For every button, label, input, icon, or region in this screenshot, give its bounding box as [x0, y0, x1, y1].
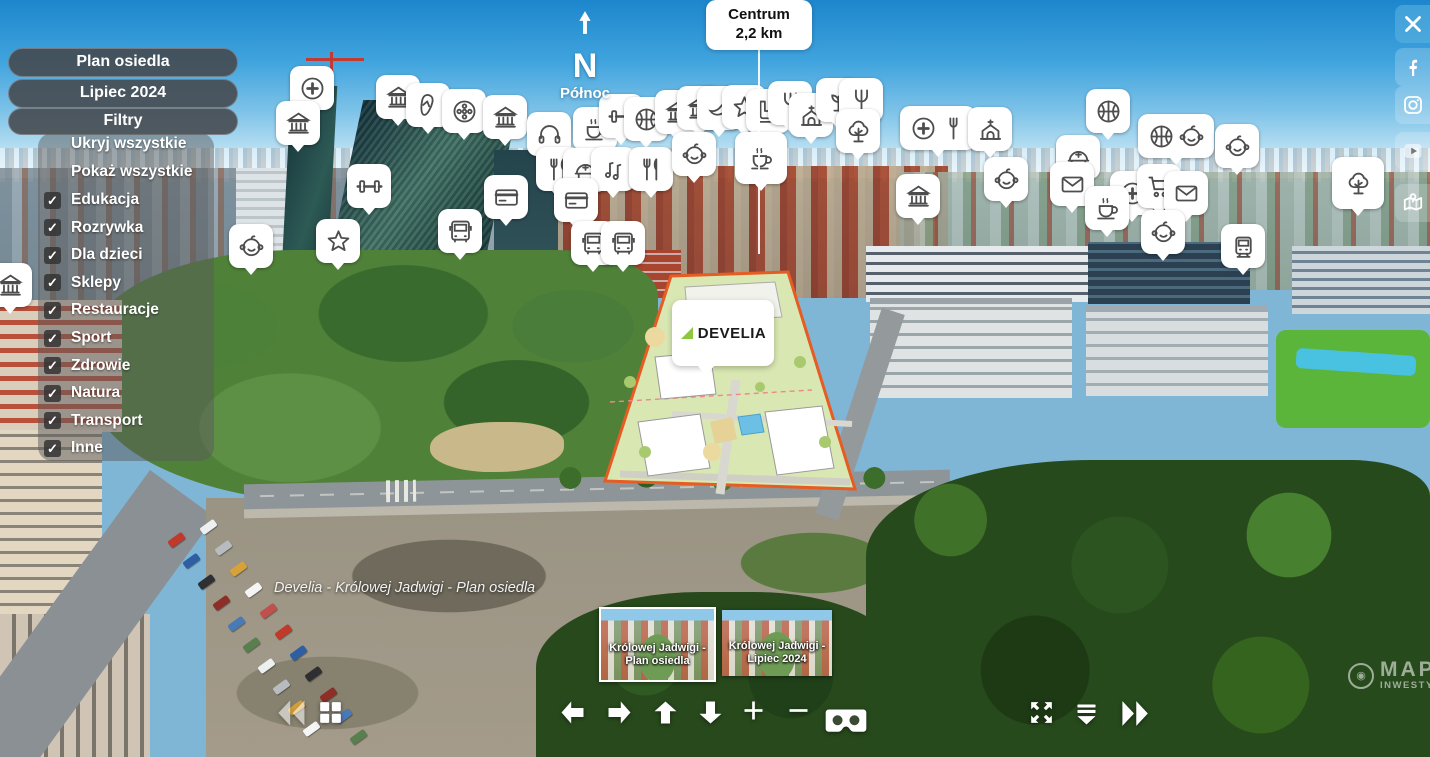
- filter-category-label: Restauracje: [71, 301, 159, 319]
- poi-marker-basketball-baby[interactable]: [1138, 114, 1214, 158]
- filter-category-zdrowie[interactable]: ✓ Zdrowie: [44, 354, 130, 378]
- checkbox-icon[interactable]: ✓: [44, 440, 61, 457]
- fullscreen-icon: [1026, 697, 1057, 728]
- show-all-button[interactable]: Pokaż wszystkie: [44, 160, 192, 184]
- baby-icon: [1149, 218, 1178, 247]
- checkbox-icon[interactable]: ✓: [44, 192, 61, 209]
- hide-all-button[interactable]: Ukryj wszystkie: [44, 132, 186, 156]
- fast-forward-button[interactable]: [1117, 695, 1154, 737]
- arrow-up-icon: [650, 697, 681, 728]
- instagram-icon: [1401, 93, 1425, 117]
- vr-button[interactable]: [823, 698, 869, 749]
- poi-marker-dumbbell[interactable]: [347, 164, 391, 208]
- tree-icon: [1344, 169, 1373, 198]
- filter-category-sport[interactable]: ✓ Sport: [44, 326, 111, 350]
- basketball-icon: [1147, 122, 1176, 151]
- poi-marker-coffee[interactable]: [735, 132, 787, 184]
- filter-category-dla-dzieci[interactable]: ✓ Dla dzieci: [44, 243, 143, 267]
- apartment-block-2: [1086, 306, 1268, 396]
- basketball-icon: [1094, 97, 1123, 126]
- filter-category-label: Zdrowie: [71, 357, 130, 375]
- checkbox-icon[interactable]: ✓: [44, 385, 61, 402]
- checkbox-icon[interactable]: ✓: [44, 412, 61, 429]
- poi-marker-coffee[interactable]: [1085, 186, 1129, 230]
- developer-logo-card[interactable]: DEVELIA: [672, 300, 774, 366]
- coffee-icon: [1093, 194, 1122, 223]
- close-icon: [1401, 12, 1425, 36]
- sports-field: [1276, 330, 1430, 428]
- vr-icon: [823, 698, 869, 744]
- coffee-icon: [747, 144, 776, 173]
- office-building: [866, 246, 1098, 302]
- filter-category-inne[interactable]: ✓ Inne: [44, 436, 103, 460]
- compass-label: Północ: [545, 85, 625, 102]
- watermark: ◉ MAPY INWESTYCJI: [1348, 660, 1430, 691]
- filter-category-label: Rozrywka: [71, 219, 143, 237]
- poi-marker-basketball[interactable]: [1086, 89, 1130, 133]
- distance-callout: Centrum 2,2 km: [706, 0, 812, 50]
- callout-distance: 2,2 km: [706, 24, 812, 43]
- map-button[interactable]: [1395, 184, 1430, 222]
- filter-category-label: Transport: [71, 412, 142, 430]
- filter-category-label: Dla dzieci: [71, 246, 143, 264]
- checkbox-icon[interactable]: ✓: [44, 274, 61, 291]
- checkbox-icon[interactable]: ✓: [44, 247, 61, 264]
- poi-marker-baby[interactable]: [1215, 124, 1259, 168]
- arrow-up-button[interactable]: [650, 697, 681, 733]
- play-icon: [1401, 139, 1425, 163]
- cutlery-icon: [637, 155, 666, 184]
- scene-caption: Develia - Królowej Jadwigi - Plan osiedl…: [274, 580, 535, 596]
- arrow-left-button[interactable]: [557, 697, 588, 733]
- notes-icon: [599, 155, 628, 184]
- filter-category-rozrywka[interactable]: ✓ Rozrywka: [44, 216, 143, 240]
- poi-marker-bank[interactable]: [0, 263, 32, 307]
- church-icon: [976, 115, 1005, 144]
- filters-title: Filtry: [8, 108, 238, 135]
- facebook-button[interactable]: [1395, 48, 1430, 86]
- far-right-building: [1292, 246, 1430, 314]
- medical-icon: [909, 114, 938, 143]
- star-icon: [324, 227, 353, 256]
- bank-icon: [0, 271, 25, 300]
- poi-marker-bus[interactable]: [438, 209, 482, 253]
- callout-stem: [758, 44, 760, 254]
- map-icon: [1401, 191, 1425, 215]
- plus-icon: [740, 697, 767, 724]
- filter-category-label: Sport: [71, 329, 111, 347]
- site-plan-overlay[interactable]: [560, 262, 880, 502]
- card-icon: [562, 186, 591, 215]
- bus-icon: [609, 229, 638, 258]
- filter-category-sklepy[interactable]: ✓ Sklepy: [44, 271, 121, 295]
- arrow-left-icon: [557, 697, 588, 728]
- bank-icon: [284, 109, 313, 138]
- poi-marker-baby[interactable]: [984, 157, 1028, 201]
- tram-icon: [1229, 232, 1258, 261]
- fast-forward-icon: [1117, 695, 1154, 732]
- medical-icon: [298, 74, 327, 103]
- instagram-button[interactable]: [1395, 86, 1430, 124]
- crosswalk: [386, 480, 416, 503]
- thumbnail-plan-osiedla[interactable]: Królowej Jadwigi -Plan osiedla: [599, 607, 716, 682]
- arrow-right-button[interactable]: [604, 697, 635, 733]
- baby-icon: [1177, 122, 1206, 151]
- filter-category-natura[interactable]: ✓ Natura: [44, 381, 120, 405]
- develia-logo-icon: [680, 326, 694, 340]
- compass-letter: N: [545, 49, 625, 83]
- poi-marker-card[interactable]: [554, 178, 598, 222]
- baby-icon: [680, 140, 709, 169]
- collapse-button[interactable]: [1071, 698, 1102, 734]
- minus-icon: [785, 697, 812, 724]
- rewind-icon: [272, 694, 310, 732]
- bank-icon: [491, 103, 520, 132]
- mail-icon: [1058, 170, 1087, 199]
- poi-marker-cutlery[interactable]: [629, 147, 673, 191]
- close-button[interactable]: [1395, 5, 1430, 43]
- arrow-down-button[interactable]: [695, 697, 726, 733]
- collapse-icon: [1071, 698, 1102, 729]
- baby-icon: [1223, 132, 1252, 161]
- north-arrow-icon: [572, 6, 598, 40]
- filter-category-restauracje[interactable]: ✓ Restauracje: [44, 298, 159, 322]
- poi-marker-tram[interactable]: [1221, 224, 1265, 268]
- poi-marker-film[interactable]: [442, 89, 486, 133]
- arrow-right-icon: [604, 697, 635, 728]
- play-button[interactable]: [1395, 132, 1430, 170]
- checkbox-icon[interactable]: ✓: [44, 302, 61, 319]
- dumbbell-icon: [355, 172, 384, 201]
- view-button-plan-osiedla[interactable]: Plan osiedla: [8, 48, 238, 77]
- crane-arm: [306, 58, 364, 61]
- filter-category-edukacja[interactable]: ✓ Edukacja: [44, 188, 139, 212]
- filter-category-transport[interactable]: ✓ Transport: [44, 409, 142, 433]
- slipper-icon: [414, 91, 443, 120]
- fork-icon: [939, 114, 968, 143]
- watermark-logo-icon: ◉: [1348, 663, 1374, 689]
- poi-marker-church[interactable]: [968, 107, 1012, 151]
- filter-category-label: Sklepy: [71, 274, 121, 292]
- poi-marker-star[interactable]: [316, 219, 360, 263]
- poi-marker-mail[interactable]: [1164, 171, 1208, 215]
- minus-button[interactable]: [785, 697, 812, 729]
- poi-marker-baby[interactable]: [229, 224, 273, 268]
- poi-marker-bank[interactable]: [483, 95, 527, 139]
- poi-marker-bus[interactable]: [601, 221, 645, 265]
- arrow-down-icon: [695, 697, 726, 728]
- developer-logo-text: DEVELIA: [698, 325, 767, 342]
- filter-category-label: Inne: [71, 439, 103, 457]
- poi-marker-medical-fork[interactable]: [900, 106, 976, 150]
- poi-marker-bank[interactable]: [276, 101, 320, 145]
- poi-marker-bank[interactable]: [896, 174, 940, 218]
- checkbox-icon[interactable]: ✓: [44, 357, 61, 374]
- baby-icon: [992, 165, 1021, 194]
- film-icon: [450, 97, 479, 126]
- poi-marker-card[interactable]: [484, 175, 528, 219]
- poi-marker-baby[interactable]: [672, 132, 716, 176]
- grid-icon: [315, 697, 346, 728]
- poi-marker-baby[interactable]: [1141, 210, 1185, 254]
- view-button-lipiec-2024[interactable]: Lipiec 2024: [8, 79, 238, 108]
- filter-category-label: Edukacja: [71, 191, 139, 209]
- headphones-icon: [535, 120, 564, 149]
- bus-icon: [446, 217, 475, 246]
- checkbox-icon[interactable]: ✓: [44, 330, 61, 347]
- tree-icon: [844, 117, 873, 146]
- mail-icon: [1172, 179, 1201, 208]
- card-icon: [492, 183, 521, 212]
- rewind-button[interactable]: [272, 694, 310, 737]
- callout-title: Centrum: [706, 5, 812, 24]
- poi-marker-tree[interactable]: [836, 109, 880, 153]
- grid-button[interactable]: [315, 697, 346, 733]
- filter-category-label: Natura: [71, 384, 120, 402]
- compass: N Północ: [545, 6, 625, 102]
- baby-icon: [237, 232, 266, 261]
- fullscreen-button[interactable]: [1026, 697, 1057, 733]
- plus-button[interactable]: [740, 697, 767, 729]
- bank-icon: [904, 182, 933, 211]
- checkbox-icon[interactable]: ✓: [44, 219, 61, 236]
- poi-marker-tree[interactable]: [1332, 157, 1384, 209]
- thumbnail-lipiec-2024[interactable]: Królowej Jadwigi -Lipiec 2024: [722, 610, 832, 676]
- facebook-icon: [1401, 55, 1425, 79]
